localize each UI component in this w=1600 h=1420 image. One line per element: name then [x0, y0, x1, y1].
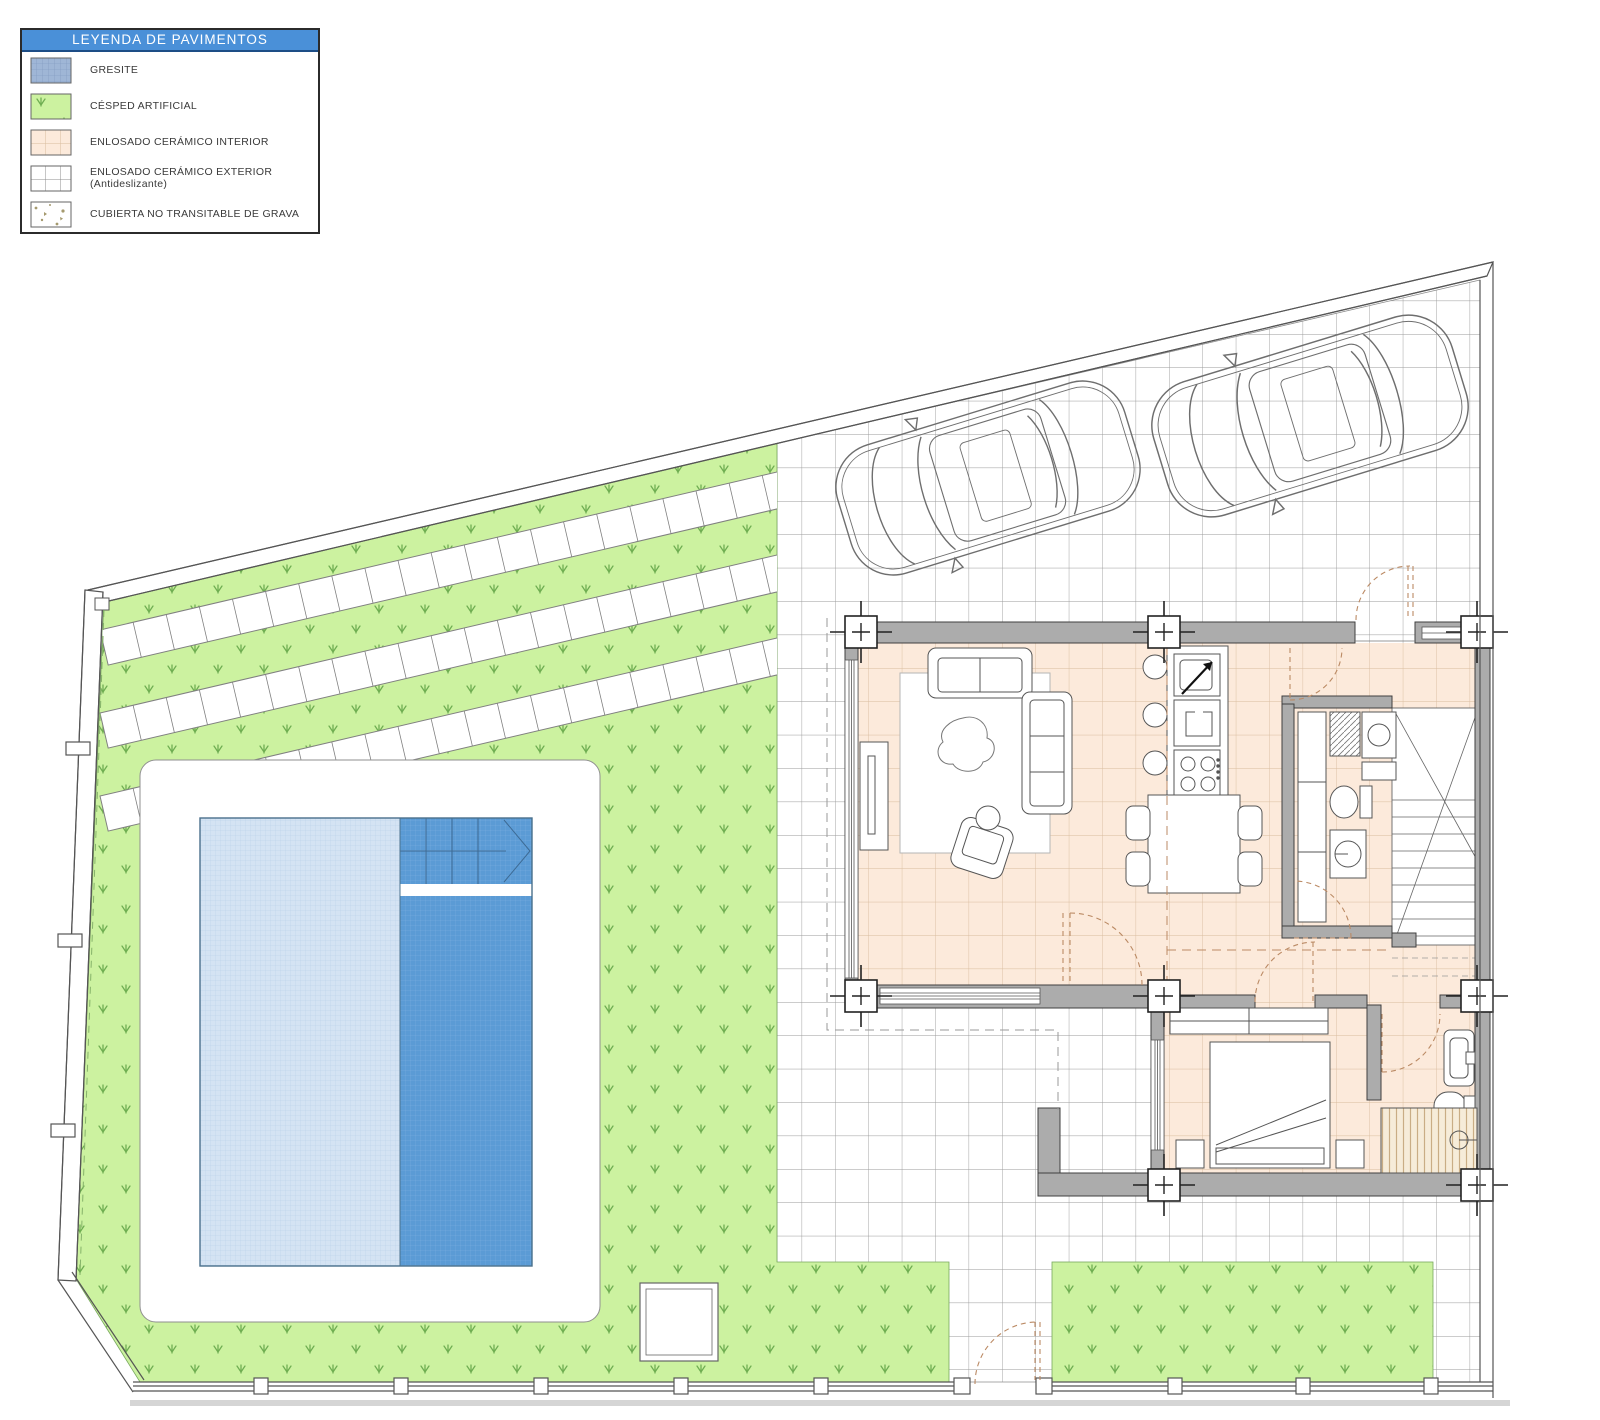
nightstand	[1336, 1140, 1364, 1168]
wardrobe	[1170, 1008, 1328, 1034]
legend-item-label: ENLOSADO CERÁMICO INTERIOR	[90, 136, 269, 148]
washing-machine	[1362, 712, 1396, 758]
legend-title: LEYENDA DE PAVIMENTOS	[22, 30, 318, 52]
legend-item-cesped: CÉSPED ARTIFICIAL	[22, 88, 318, 124]
living-window-south	[880, 988, 1040, 1004]
boiler	[1362, 762, 1396, 780]
pavement-legend: LEYENDA DE PAVIMENTOS GRESITE CÉSPED ART…	[20, 28, 320, 234]
site-plan-page: LEYENDA DE PAVIMENTOS GRESITE CÉSPED ART…	[0, 0, 1600, 1420]
grass-strip-bottom-right	[1052, 1262, 1433, 1382]
legend-item-ceramico-exterior: ENLOSADO CERÁMICO EXTERIOR (Antideslizan…	[22, 160, 318, 196]
legend-item-label: CÉSPED ARTIFICIAL	[90, 100, 197, 112]
legend-item-label: CUBIERTA NO TRANSITABLE DE GRAVA	[90, 208, 299, 220]
legend-item-ceramico-interior: ENLOSADO CERÁMICO INTERIOR	[22, 124, 318, 160]
legend-item-gresite: GRESITE	[22, 52, 318, 88]
hob	[1174, 750, 1220, 796]
sofa-side	[1022, 692, 1072, 814]
gravel-roof-swatch	[30, 201, 72, 228]
living-window-west	[845, 660, 858, 978]
side-table	[976, 806, 1000, 830]
legend-item-grava: CUBIERTA NO TRANSITABLE DE GRAVA	[22, 196, 318, 232]
washer-2	[1330, 830, 1366, 878]
sofa	[928, 648, 1032, 698]
legend-item-label: GRESITE	[90, 64, 138, 76]
nightstand	[1176, 1140, 1204, 1168]
exterior-ceramic-swatch	[30, 165, 72, 192]
stool	[1143, 751, 1167, 775]
bedroom-window-west	[1151, 1040, 1164, 1150]
gresite-swatch	[30, 57, 72, 84]
planter	[640, 1283, 718, 1361]
shower	[1381, 1108, 1477, 1173]
interior-ceramic-swatch	[30, 129, 72, 156]
artificial-grass-swatch	[30, 93, 72, 120]
bed	[1210, 1042, 1330, 1168]
oven	[1174, 700, 1220, 746]
stool	[1143, 703, 1167, 727]
wc-toilet	[1330, 786, 1372, 818]
pool	[200, 818, 532, 1266]
tall-cabinet	[1298, 712, 1326, 922]
legend-item-label: ENLOSADO CERÁMICO EXTERIOR (Antideslizan…	[90, 166, 318, 190]
laundry-sink	[1330, 712, 1360, 756]
kitchen-sink	[1174, 654, 1220, 696]
bath-sink	[1444, 1030, 1475, 1086]
tv-unit	[860, 742, 888, 850]
